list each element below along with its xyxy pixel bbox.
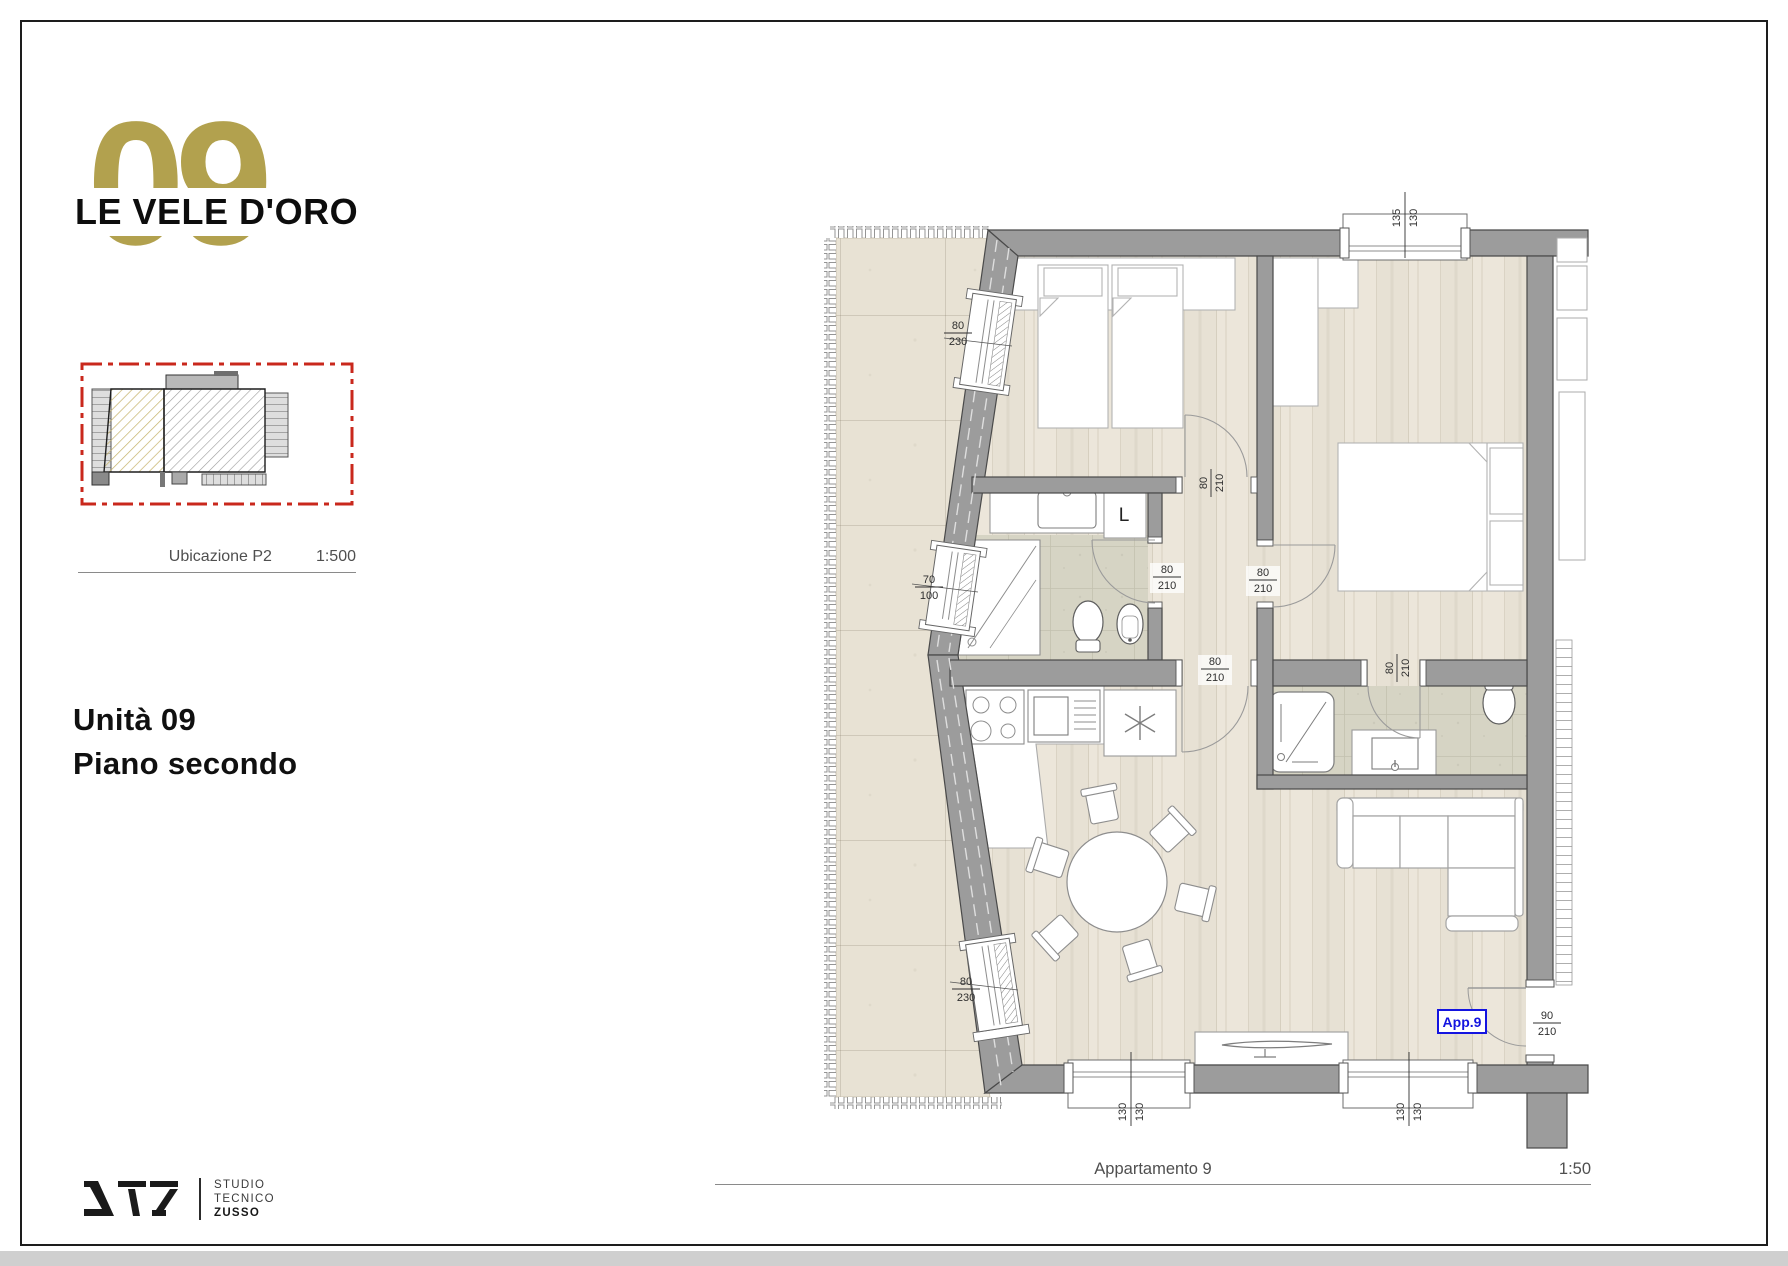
dining-table (1067, 832, 1167, 932)
wall-top (988, 230, 1588, 256)
svg-text:210: 210 (1206, 672, 1224, 684)
svg-text:210: 210 (1254, 583, 1272, 595)
wall-bath2-top-a (1273, 660, 1367, 686)
svg-text:90: 90 (1541, 1010, 1553, 1022)
double-pillow-1 (1490, 448, 1523, 514)
svg-text:80: 80 (960, 976, 972, 988)
svg-text:135: 135 (1391, 209, 1403, 227)
kitchen-sink (1034, 697, 1068, 735)
toilet-1-tank (1076, 640, 1100, 652)
tv-cabinet (1195, 1032, 1348, 1065)
wall-right (1527, 256, 1553, 1093)
wall-kitchen (950, 660, 1182, 686)
bottom-strip (0, 1251, 1788, 1266)
apartment-tag: App.9 (1438, 1010, 1486, 1033)
svg-text:80: 80 (1161, 564, 1173, 576)
svg-text:210: 210 (1158, 580, 1176, 592)
hob (966, 690, 1024, 744)
svg-text:70: 70 (923, 574, 935, 586)
svg-text:100: 100 (920, 590, 938, 602)
svg-text:App.9: App.9 (1443, 1014, 1482, 1030)
wall-bath1-right-b (1148, 608, 1162, 660)
wall-ext-bottom-right (1527, 1093, 1567, 1148)
washer-label: L (1119, 505, 1130, 526)
sofa-seat-1 (1353, 816, 1400, 868)
terrace-fringe-top (830, 226, 990, 238)
wall-bath1-top (972, 477, 1182, 493)
terrace-fringe-bottom (830, 1097, 1002, 1109)
svg-text:80: 80 (1257, 567, 1269, 579)
exterior-railing (1556, 640, 1572, 985)
svg-text:130: 130 (1412, 1103, 1424, 1121)
wall-bath2-left (1257, 608, 1273, 789)
wardrobe-2 (1318, 258, 1358, 308)
bidet-drain (1128, 638, 1132, 642)
window-bottom-right (1339, 1060, 1477, 1108)
terrace-fringe-left (824, 238, 836, 1097)
dim-door-living: 80 210 (1198, 655, 1232, 685)
dim-door-entry: 90 210 (1530, 1009, 1564, 1039)
svg-text:230: 230 (957, 992, 975, 1004)
svg-text:80: 80 (1209, 656, 1221, 668)
sofa-chaise (1448, 868, 1515, 916)
dim-door-bed2: 80 210 (1246, 566, 1280, 596)
svg-text:80: 80 (1384, 662, 1396, 674)
wall-bath1-right-a (1148, 493, 1162, 543)
plan-sheet: 09 LE VELE D'ORO (0, 0, 1788, 1266)
double-pillow-2 (1490, 521, 1523, 585)
wall-bath2-bottom (1257, 775, 1527, 789)
svg-text:210: 210 (1538, 1026, 1556, 1038)
sofa-arm-left (1337, 798, 1353, 868)
svg-text:130: 130 (1134, 1103, 1146, 1121)
bath1-sink (1038, 492, 1096, 528)
svg-text:130: 130 (1395, 1103, 1407, 1121)
pillow-2 (1118, 268, 1177, 296)
window-bottom-left (1064, 1060, 1194, 1108)
pillow-1 (1044, 268, 1102, 296)
sofa-back (1337, 798, 1523, 816)
svg-text:230: 230 (949, 336, 967, 348)
svg-text:80: 80 (1198, 477, 1210, 489)
sofa-corner (1448, 816, 1515, 868)
wall-bath2-top-b (1420, 660, 1527, 686)
sofa-side (1515, 798, 1523, 916)
toilet-1 (1073, 601, 1103, 643)
svg-text:210: 210 (1400, 659, 1412, 677)
exterior-right-details (1556, 238, 1587, 985)
sofa-seat-2 (1400, 816, 1448, 868)
svg-text:210: 210 (1214, 474, 1226, 492)
wardrobe-1 (1273, 258, 1318, 406)
svg-text:130: 130 (1117, 1103, 1129, 1121)
svg-text:130: 130 (1408, 209, 1420, 227)
dim-door-bath1: 80 210 (1150, 563, 1184, 593)
floor-plan: L (0, 0, 1788, 1266)
svg-text:80: 80 (952, 320, 964, 332)
sofa-foot (1446, 916, 1518, 931)
wall-divider-bedrooms (1257, 256, 1273, 540)
